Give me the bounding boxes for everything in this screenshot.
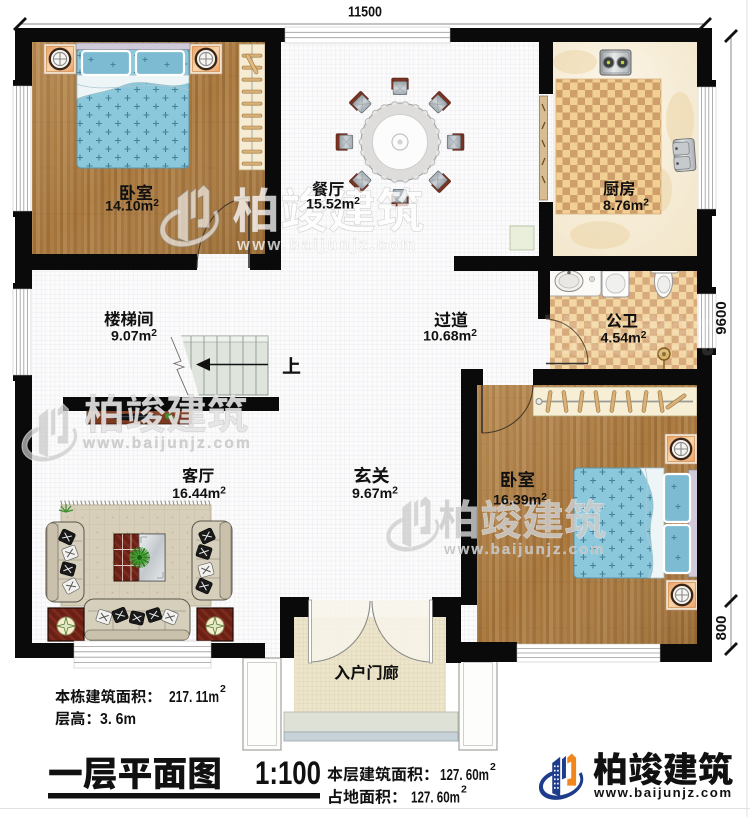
svg-text:1:100: 1:100 <box>255 755 321 791</box>
svg-text:4.54m2: 4.54m2 <box>601 330 647 347</box>
svg-text:2: 2 <box>220 683 226 695</box>
svg-text:10.68m2: 10.68m2 <box>423 328 477 345</box>
svg-text:2: 2 <box>490 761 496 773</box>
svg-text:11500: 11500 <box>348 5 382 21</box>
svg-text:www.baijunjz.com: www.baijunjz.com <box>593 785 733 800</box>
svg-text:15.52m2: 15.52m2 <box>306 196 360 213</box>
svg-text:www.baijunjz.com: www.baijunjz.com <box>236 236 418 254</box>
svg-text:127. 60m: 127. 60m <box>411 790 460 807</box>
svg-text:www.baijunjz.com: www.baijunjz.com <box>82 435 252 452</box>
svg-text:9600: 9600 <box>713 301 730 334</box>
svg-text:9.67m2: 9.67m2 <box>352 485 398 502</box>
svg-text:217. 11m: 217. 11m <box>169 689 219 706</box>
svg-text:800: 800 <box>713 615 730 640</box>
svg-text:14.10m2: 14.10m2 <box>105 198 159 215</box>
svg-text:www.baijunjz.com: www.baijunjz.com <box>443 541 605 558</box>
svg-text:9.07m2: 9.07m2 <box>111 328 157 345</box>
svg-text:8.76m2: 8.76m2 <box>603 197 649 214</box>
svg-text:127. 60m: 127. 60m <box>440 767 489 784</box>
svg-text:16.44m2: 16.44m2 <box>172 485 226 502</box>
svg-text:2: 2 <box>461 784 467 796</box>
svg-text:3. 6m: 3. 6m <box>100 711 136 728</box>
svg-text:16.39m2: 16.39m2 <box>493 492 547 509</box>
